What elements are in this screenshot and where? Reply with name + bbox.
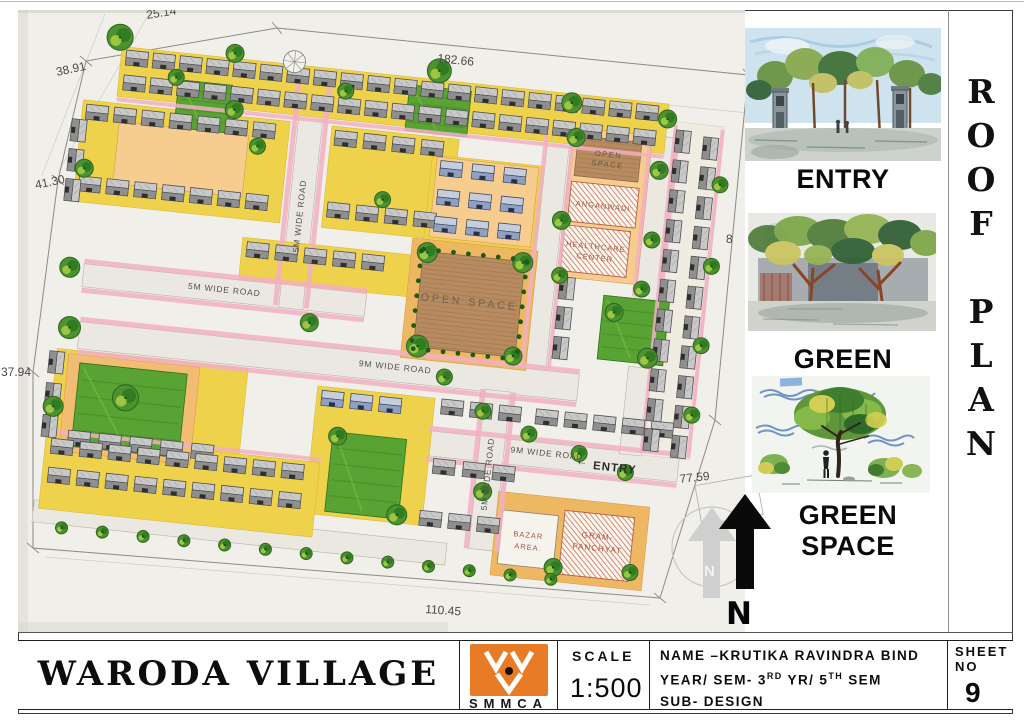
titleblock-top-line (18, 632, 1013, 633)
north-sketch-letter: N (704, 563, 715, 580)
dim-right-upper: 8 (726, 232, 733, 246)
green-space-sketch-image-1 (748, 213, 936, 331)
student-name-line: NAME –KRUTIKA RAVINDRA BIND (660, 645, 947, 666)
sheet-label-1: SHEET (955, 644, 1013, 659)
dim-left-lower: 37.94 (1, 365, 31, 379)
green-space-sketch-image-2 (752, 376, 930, 493)
scale-label: SCALE (572, 648, 649, 664)
sheet-label-2: NO (955, 659, 1013, 674)
sheet-number: 9 (965, 677, 1013, 709)
logo-text: SMMCA (460, 696, 557, 711)
north-letter: N (726, 596, 752, 632)
year-sem-line: YEAR/ SEM- 3RD YR/ 5TH SEM (660, 666, 947, 691)
drawing-sheet: { "plan": { "dimensions": { "top_left": … (0, 0, 1024, 724)
entry-arrow: ← (575, 455, 589, 468)
sheet-number-cell: SHEET NO 9 (947, 641, 1013, 709)
title-block: WARODA VILLAGE SMMCA SCALE 1:500 NAME –K… (18, 640, 1013, 710)
sheet-title-vertical: R O O F P L A N (949, 10, 1013, 632)
subject-line: SUB- DESIGN (660, 691, 947, 712)
project-name-cell: WARODA VILLAGE (18, 641, 459, 709)
dim-bottom: 110.45 (425, 602, 462, 618)
project-title: WARODA VILLAGE (18, 641, 459, 707)
college-logo (470, 644, 548, 696)
logo-cell: SMMCA (459, 641, 557, 709)
student-info-cell: NAME –KRUTIKA RAVINDRA BIND YEAR/ SEM- 3… (649, 641, 947, 709)
logo-emblem (470, 644, 548, 696)
scale-cell: SCALE 1:500 (557, 641, 649, 709)
entry-sketch-label: ENTRY (745, 164, 941, 195)
scan-edge-line (0, 1, 1024, 2)
scale-value: 1:500 (570, 673, 649, 704)
entry-sketch-image (745, 28, 941, 161)
green-space-sketch-label-2: GREEN SPACE (748, 500, 948, 562)
